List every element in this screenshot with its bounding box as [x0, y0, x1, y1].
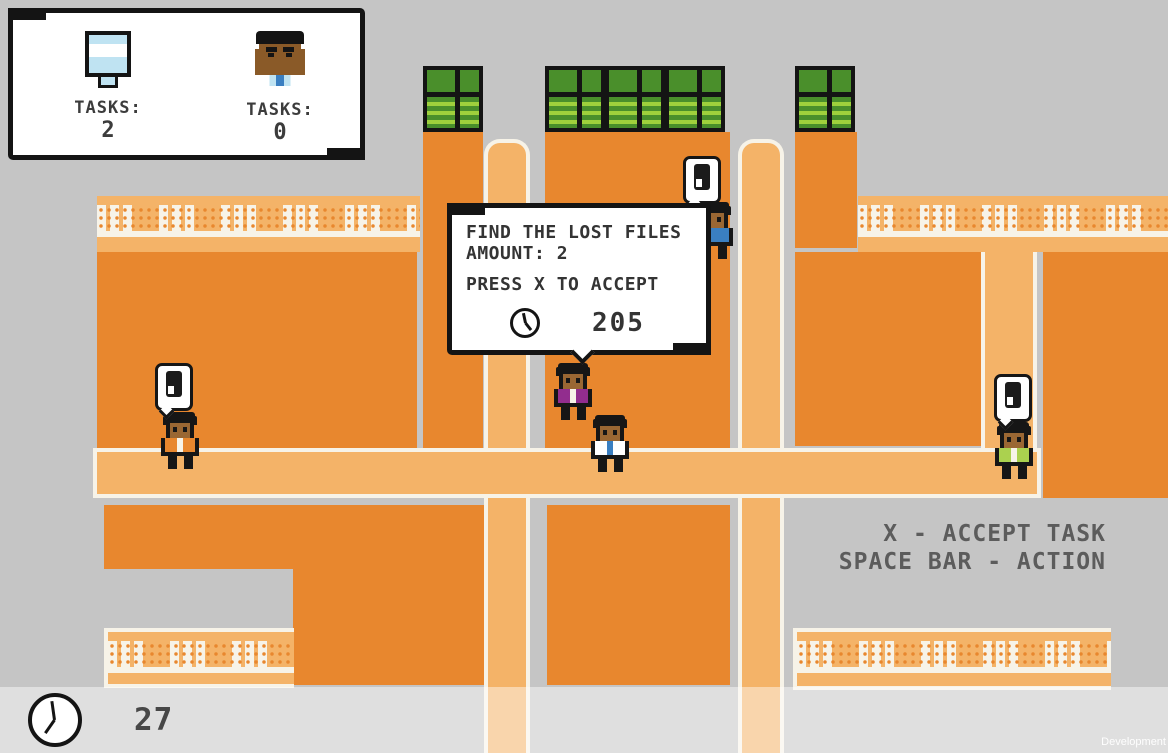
person-icon — [250, 31, 310, 95]
npc-legs — [588, 459, 632, 472]
person-hair — [256, 31, 304, 44]
fence-bottom-right — [793, 628, 1111, 690]
tasks-board-value: 2 — [101, 118, 114, 143]
tasks-person-value: 0 — [273, 120, 286, 145]
floor-block-bottom-left-b — [293, 569, 484, 685]
floor-block-top-left — [97, 252, 417, 450]
floor-block-bottom-left-a — [104, 505, 484, 569]
hud-bar: 27 — [0, 687, 1168, 753]
dialog-timer-row: 205 — [452, 308, 706, 338]
dialog-accept-prompt: PRESS X TO ACCEPT — [466, 274, 706, 295]
npc-hair — [558, 363, 588, 374]
filing-cabinet — [423, 66, 483, 132]
filing-cabinet — [545, 66, 605, 132]
task-dialog: FIND THE LOST FILES AMOUNT: 2 PRESS X TO… — [447, 203, 711, 355]
filing-cabinet — [665, 66, 725, 132]
tasks-person-slot: TASKS: 0 — [225, 31, 335, 145]
npc-face — [1000, 433, 1028, 448]
fence-rail — [97, 205, 420, 239]
whiteboard-face — [85, 31, 131, 77]
npc-face — [559, 374, 587, 389]
cabinet-group-center — [545, 66, 725, 132]
filing-cabinet — [605, 66, 665, 132]
fence-top-left — [97, 196, 420, 252]
fence-rail — [108, 641, 294, 675]
npc-torso — [161, 438, 199, 456]
tasks-board-slot: TASKS: 2 — [53, 31, 163, 143]
dialog-title: FIND THE LOST FILES — [466, 222, 706, 243]
speech-bubble — [994, 374, 1032, 422]
file-icon — [1005, 382, 1021, 408]
fence-rail — [797, 641, 1111, 675]
cabinet-group-left — [423, 66, 483, 132]
walkway-vertical-center — [738, 139, 784, 753]
clock-icon — [28, 693, 82, 747]
person-face — [259, 44, 301, 72]
floor-block-far-right — [1043, 252, 1168, 498]
floor-block-bottom-center — [547, 505, 730, 685]
game-viewport: TASKS: 2 TASKS: 0 FIND THE LOST FILES AM… — [0, 0, 1168, 753]
fence-rail — [858, 205, 1168, 239]
development-watermark: Development — [1101, 736, 1166, 748]
cabinet-group-right — [795, 66, 855, 132]
key-instructions: X - ACCEPT TASK SPACE BAR - ACTION — [839, 520, 1106, 576]
fence-top-right — [858, 196, 1168, 252]
whiteboard-icon — [82, 31, 134, 93]
walkway-horizontal — [93, 448, 1041, 498]
npc-face — [596, 426, 624, 441]
speech-bubble — [155, 363, 193, 411]
floor-block-right — [795, 252, 985, 446]
npc-legs — [992, 466, 1036, 479]
tasks-board-label: TASKS: — [74, 98, 141, 118]
player-character[interactable] — [588, 415, 632, 472]
person-collar — [254, 74, 306, 86]
tasks-person-label: TASKS: — [246, 100, 313, 120]
npc-hair — [595, 415, 625, 426]
file-icon — [694, 164, 710, 190]
walkway-junction — [742, 452, 780, 494]
npc-legs — [158, 456, 202, 469]
npc-orange-shirt[interactable] — [158, 412, 202, 469]
npc-face — [166, 423, 194, 438]
hud-timer-value: 27 — [134, 702, 173, 738]
dialog-timer-value: 205 — [592, 308, 645, 338]
file-icon — [166, 371, 182, 397]
walkway-junction — [488, 452, 526, 494]
floor-block-center-c — [795, 132, 857, 248]
npc-purple-jacket[interactable] — [551, 363, 595, 420]
npc-torso — [995, 448, 1033, 466]
npc-torso — [591, 441, 629, 459]
dialog-amount: AMOUNT: 2 — [466, 243, 706, 264]
speech-bubble — [683, 156, 721, 204]
fence-bottom-left — [104, 628, 294, 688]
instruction-accept: X - ACCEPT TASK — [839, 520, 1106, 548]
clock-icon — [510, 308, 540, 338]
npc-green-shirt[interactable] — [992, 422, 1036, 479]
filing-cabinet — [795, 66, 855, 132]
instruction-action: SPACE BAR - ACTION — [839, 548, 1106, 576]
tasks-panel: TASKS: 2 TASKS: 0 — [8, 8, 365, 160]
whiteboard-base — [98, 77, 118, 88]
npc-torso — [554, 389, 592, 407]
